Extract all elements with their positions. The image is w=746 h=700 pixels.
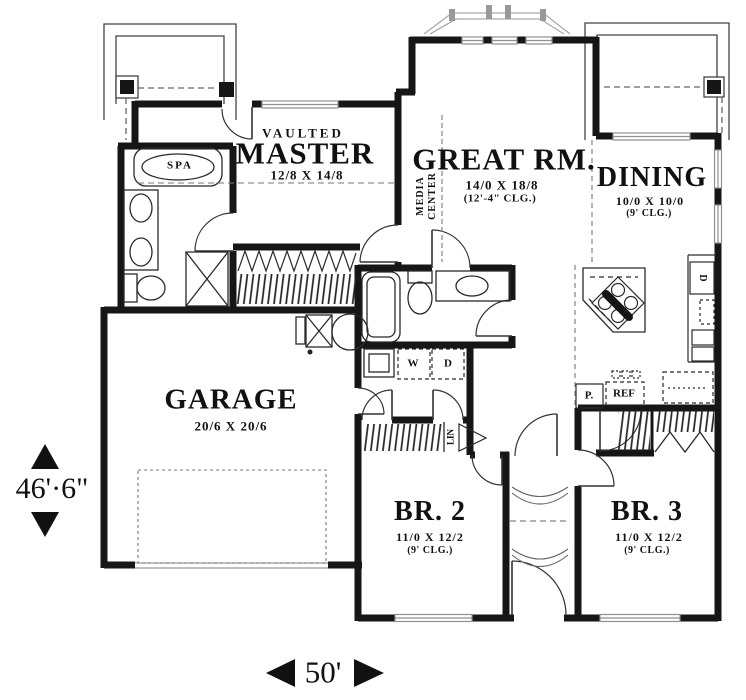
patio-right — [585, 23, 729, 140]
patio-left — [104, 24, 236, 140]
arrow-right — [354, 659, 384, 687]
hall-vanity-sink — [436, 271, 510, 301]
bedroom3-name-label: BR. 3 — [611, 498, 683, 526]
master-name-label: MASTER — [236, 138, 375, 169]
laundry-sink — [364, 349, 394, 377]
kitchen-right-counter — [688, 255, 716, 362]
garage-dims-label: 20/6 X 20/6 — [194, 420, 267, 433]
master-vanity-sinks — [124, 190, 158, 270]
refrigerator-label: REF — [613, 389, 635, 400]
floor-plan-drawing — [0, 0, 746, 700]
garage-name-label: GARAGE — [164, 386, 297, 415]
great-room-name-label: GREAT RM. — [412, 144, 596, 175]
bedroom2-ceiling-label: (9' CLG.) — [407, 546, 453, 556]
master-closet — [236, 251, 356, 304]
media-center-label-line1: MEDIA — [416, 176, 426, 215]
entry-arches — [510, 487, 568, 567]
bedroom3-dims-label: 11/0 X 12/2 — [615, 531, 683, 543]
bedroom2-name-label: BR. 2 — [394, 498, 466, 526]
washer-label: W — [408, 359, 419, 370]
master-dims-label: 12/8 X 14/8 — [270, 169, 343, 182]
garage-door — [135, 470, 328, 568]
dining-name-label: DINING — [597, 164, 707, 192]
coat-closet — [618, 410, 650, 451]
overall-width-dimension: 50' — [305, 657, 342, 688]
pantry-and-fridge — [576, 371, 713, 408]
dining-dims-label: 10/0 X 10/0 — [616, 195, 684, 207]
pantry-label: P. — [585, 391, 593, 402]
great-room-ceiling-label: (12'-4" CLG.) — [464, 194, 537, 205]
media-center-label-line2: CENTER — [428, 172, 438, 220]
linen-label: LIN — [447, 429, 456, 445]
hall-toilet — [408, 271, 432, 314]
dining-ceiling-label: (9' CLG.) — [626, 209, 672, 219]
arrow-up — [31, 444, 59, 469]
spa-label: SPA — [167, 161, 193, 172]
bedroom3-ceiling-label: (9' CLG.) — [624, 546, 670, 556]
cooktop — [592, 277, 644, 329]
overall-depth-dimension: 46'·6" — [16, 474, 89, 504]
arrow-down — [31, 512, 59, 537]
shower — [186, 252, 228, 306]
dishwasher-label: D — [697, 274, 707, 281]
bifold-doors — [655, 432, 714, 452]
great-room-dims-label: 14/0 X 18/8 — [465, 179, 538, 192]
rear-deck-outline — [424, 5, 570, 34]
arrow-left — [266, 659, 295, 687]
kitchen-sink — [692, 330, 714, 345]
hall-bathtub — [362, 272, 400, 342]
master-toilet — [124, 274, 165, 302]
br3-closet — [655, 410, 714, 452]
bedroom2-dims-label: 11/0 X 12/2 — [396, 531, 464, 543]
dryer-label: D — [444, 359, 452, 370]
floor-plan: VAULTED MASTER 12/8 X 14/8 GREAT RM. 14/… — [0, 0, 746, 700]
